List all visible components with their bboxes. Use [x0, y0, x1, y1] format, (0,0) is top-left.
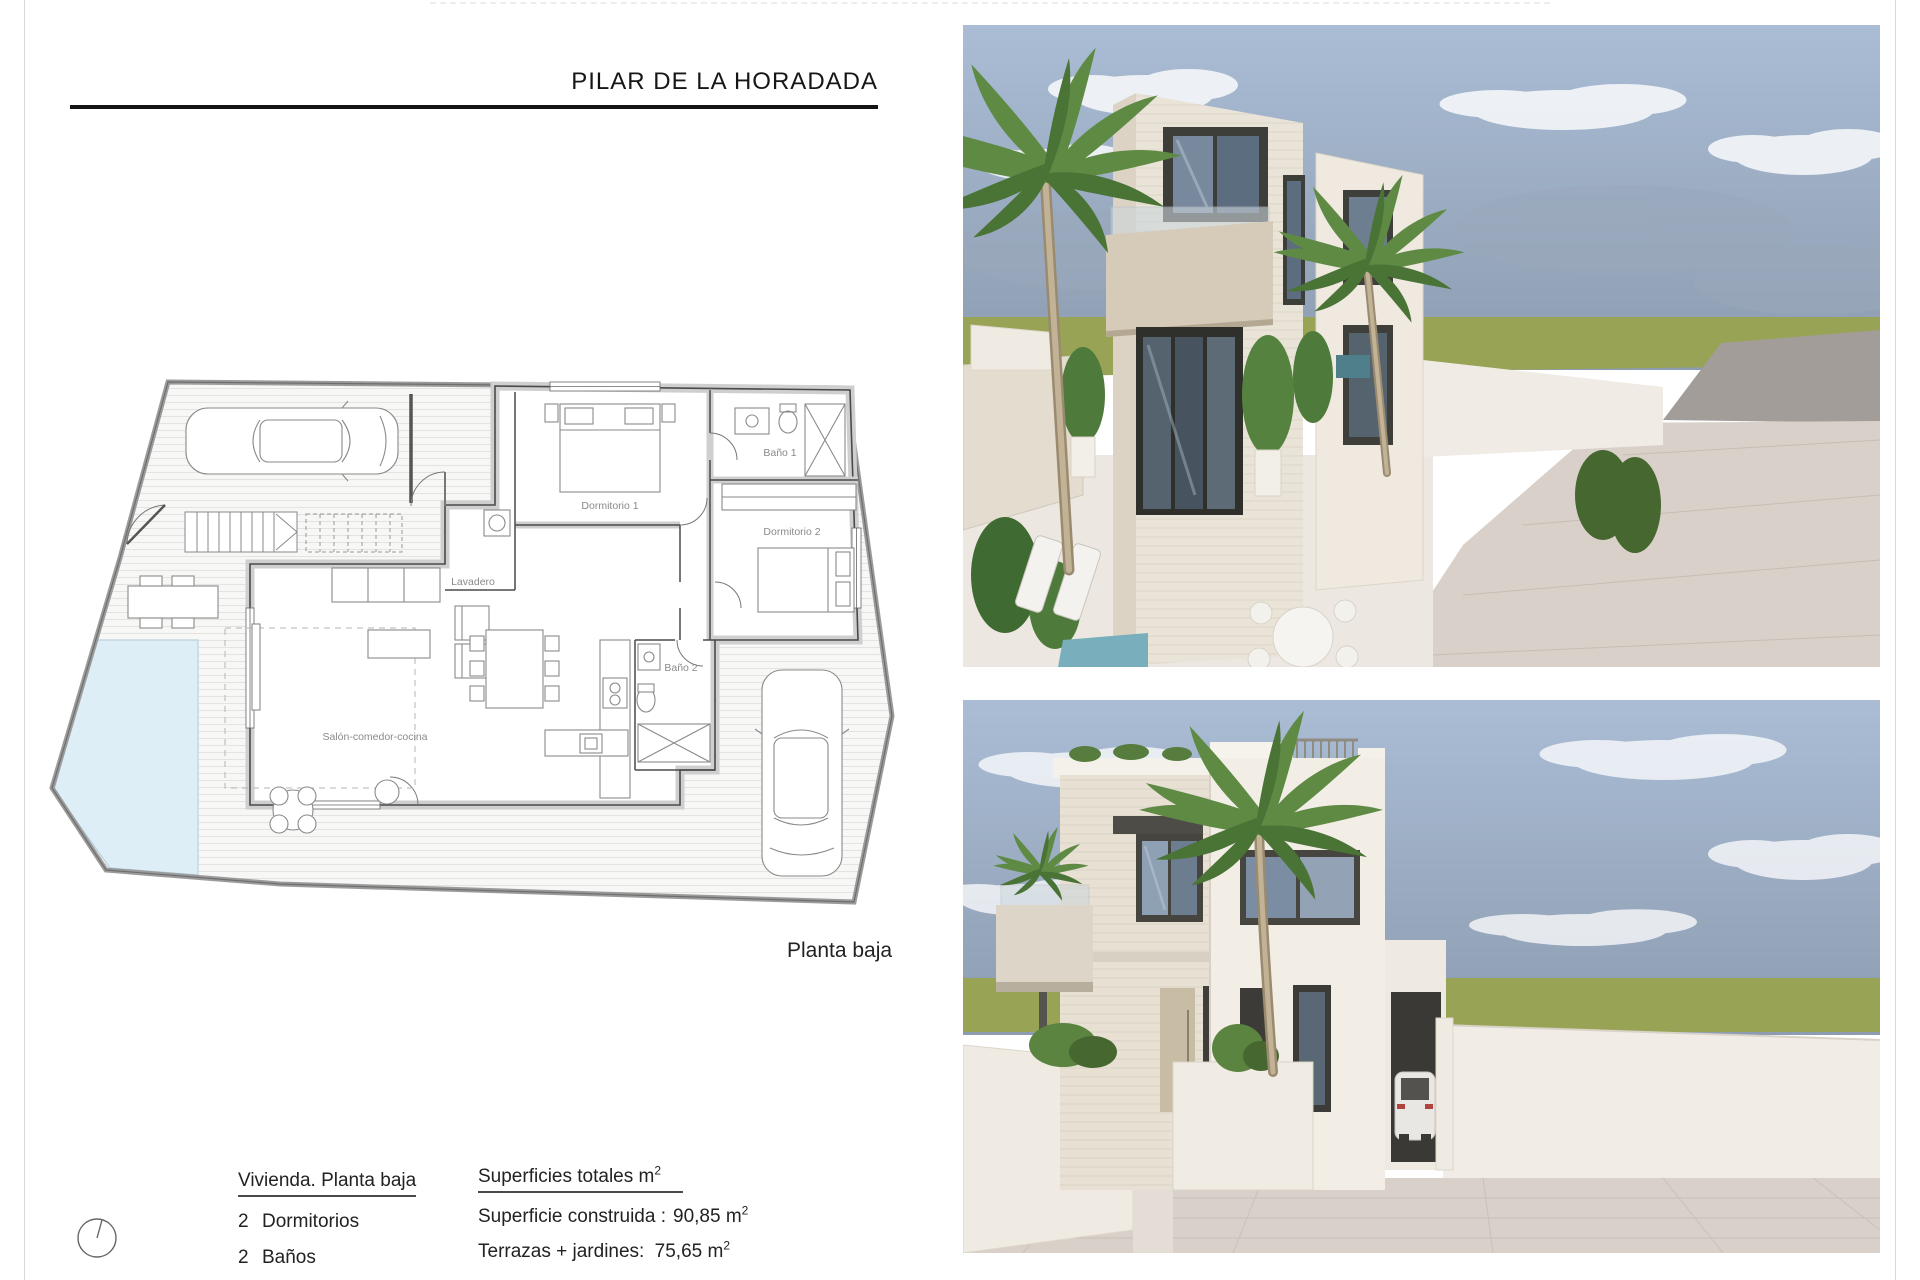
- plan-caption: Planta baja: [787, 939, 892, 963]
- surface-terraces: Terrazas + jardines: 75,65 m2: [478, 1241, 730, 1263]
- page-edge-right: [1895, 0, 1896, 1280]
- balcony-box: [996, 905, 1093, 988]
- scan-artifact: [430, 2, 1550, 4]
- pool: [54, 640, 198, 875]
- bedrooms-label: Dormitorios: [262, 1211, 359, 1232]
- bathrooms-label: Baños: [262, 1247, 316, 1268]
- surfaces-heading: Superficies totales m2: [478, 1166, 683, 1193]
- bathrooms-count: 2: [238, 1247, 262, 1269]
- balcony-box: [1106, 221, 1273, 337]
- surface-built-value: 90,85 m2: [673, 1206, 748, 1228]
- title-block: PILAR DE LA HORADADA: [70, 68, 878, 109]
- detail-bathrooms: 2Baños: [238, 1247, 416, 1269]
- room-label-salon: Salón-comedor-cocina: [322, 731, 427, 743]
- room-label-dormitorio-2: Dormitorio 2: [763, 526, 820, 538]
- right-wall: [1443, 1025, 1880, 1180]
- room-label-bano-2: Baño 2: [664, 662, 697, 674]
- car-top-view: [186, 401, 398, 481]
- floor-plan: Dormitorio 1 Baño 1 Dormitorio 2 Lavader…: [40, 378, 900, 978]
- render-photo-1: [963, 25, 1880, 667]
- stairs: [185, 512, 297, 552]
- page-edge-left: [24, 0, 25, 1280]
- render-photo-2: [963, 700, 1880, 1253]
- title-underline: [70, 105, 878, 109]
- surfaces-block: Superficies totales m2 Superficie constr…: [478, 1166, 730, 1263]
- room-label-lavadero: Lavadero: [451, 576, 495, 588]
- details-heading: Vivienda. Planta baja: [238, 1170, 416, 1197]
- room-label-dormitorio-1: Dormitorio 1: [581, 500, 638, 512]
- detail-bedrooms: 2Dormitorios: [238, 1211, 416, 1233]
- surface-terraces-value: 75,65 m2: [655, 1241, 730, 1263]
- surface-built: Superficie construida : 90,85 m2: [478, 1206, 730, 1228]
- car-rear-view: [1395, 1072, 1435, 1142]
- room-label-bano-1: Baño 1: [763, 447, 796, 459]
- center-fence: [1173, 1062, 1313, 1190]
- details-block: Vivienda. Planta baja 2Dormitorios 2Baño…: [238, 1170, 416, 1269]
- car-top-view-2: [755, 670, 849, 876]
- north-indicator-icon: [75, 1212, 119, 1260]
- garage: [1385, 940, 1453, 1170]
- page-title: PILAR DE LA HORADADA: [70, 68, 878, 96]
- bedrooms-count: 2: [238, 1211, 262, 1233]
